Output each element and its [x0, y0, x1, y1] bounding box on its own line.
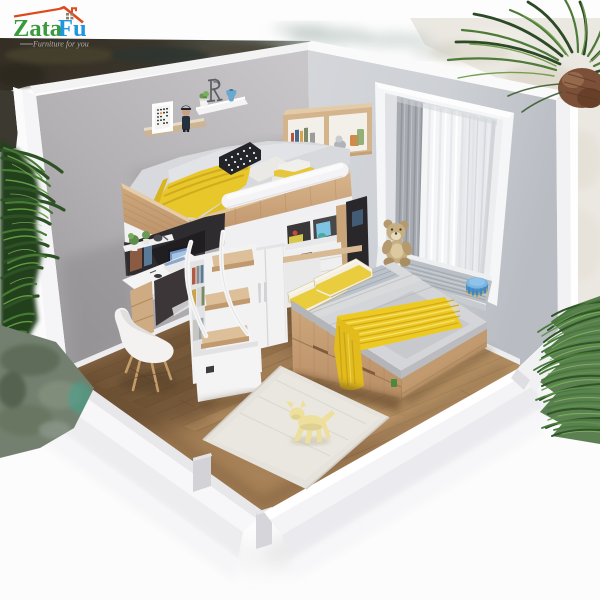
svg-text:Furniture for you: Furniture for you [32, 40, 89, 49]
svg-text:Fu: Fu [58, 15, 87, 42]
svg-text:Zata: Zata [13, 15, 62, 42]
